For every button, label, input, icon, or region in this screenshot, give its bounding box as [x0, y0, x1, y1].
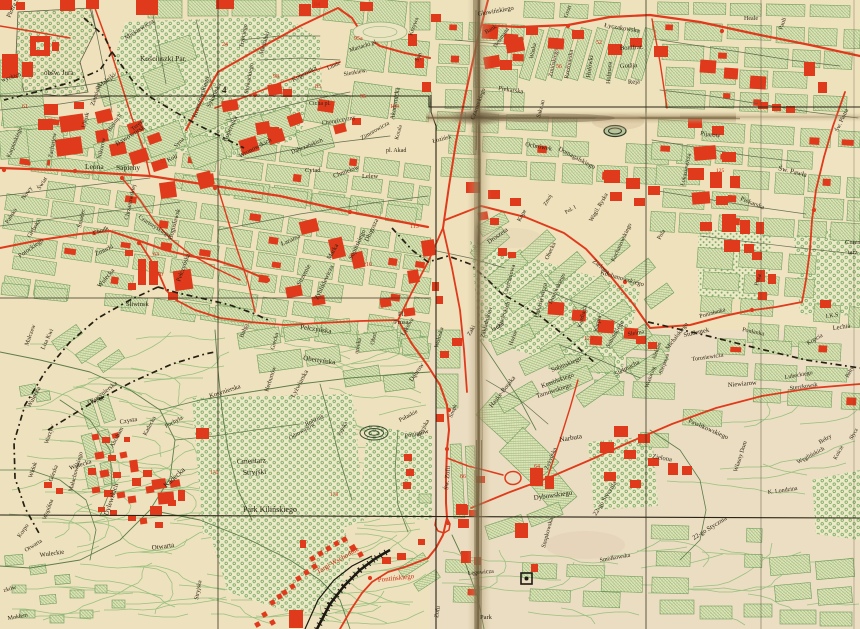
svg-text:170: 170	[210, 470, 219, 476]
svg-text:83: 83	[315, 84, 321, 90]
svg-text:56: 56	[556, 64, 562, 70]
svg-text:125: 125	[584, 336, 593, 342]
svg-text:Leona: Leona	[85, 162, 104, 171]
svg-text:Reja: Reja	[628, 78, 640, 86]
svg-text:66: 66	[460, 474, 466, 480]
svg-text:55: 55	[160, 159, 166, 165]
svg-text:95a: 95a	[354, 36, 363, 42]
svg-text:Stryjski: Stryjski	[243, 467, 267, 477]
svg-text:Gotāja: Gotāja	[620, 62, 638, 70]
svg-text:Pl.: Pl.	[398, 311, 405, 318]
svg-text:178: 178	[330, 492, 339, 498]
svg-text:Lelew: Lelew	[362, 173, 379, 180]
svg-text:113: 113	[410, 224, 419, 230]
svg-text:Cytad: Cytad	[305, 167, 321, 174]
svg-text:Sapiehy: Sapiehy	[116, 163, 140, 172]
svg-text:70: 70	[157, 272, 163, 278]
svg-text:125: 125	[716, 168, 725, 174]
svg-text:63: 63	[153, 252, 159, 258]
svg-text:Cmentarz: Cmentarz	[237, 455, 267, 466]
svg-text:98: 98	[273, 74, 279, 80]
svg-text:104: 104	[390, 104, 399, 110]
svg-text:52: 52	[596, 40, 602, 46]
svg-text:95: 95	[360, 94, 366, 100]
svg-text:Park Kilińskiego: Park Kilińskiego	[243, 505, 297, 514]
svg-text:pl. Akad: pl. Akad	[386, 148, 406, 154]
svg-text:64: 64	[314, 2, 320, 8]
svg-text:10: 10	[366, 262, 372, 268]
svg-text:61: 61	[22, 104, 28, 110]
svg-text:Bonifrat.: Bonifrat.	[620, 44, 644, 52]
svg-text:4: 4	[222, 85, 227, 95]
svg-text:Heale: Heale	[744, 16, 758, 22]
svg-text:tarz: tarz	[848, 249, 858, 256]
svg-text:Sliwinsk: Sliwinsk	[126, 301, 150, 308]
svg-text:24: 24	[222, 42, 228, 48]
svg-text:Cicha pl.: Cicha pl.	[309, 101, 331, 107]
svg-text:obśw. Jura: obśw. Jura	[44, 69, 74, 77]
svg-text:Park: Park	[480, 614, 493, 621]
svg-text:Kościuszki Par.: Kościuszki Par.	[140, 54, 187, 63]
svg-text:Cmen: Cmen	[845, 239, 860, 246]
svg-text:64: 64	[534, 464, 540, 470]
